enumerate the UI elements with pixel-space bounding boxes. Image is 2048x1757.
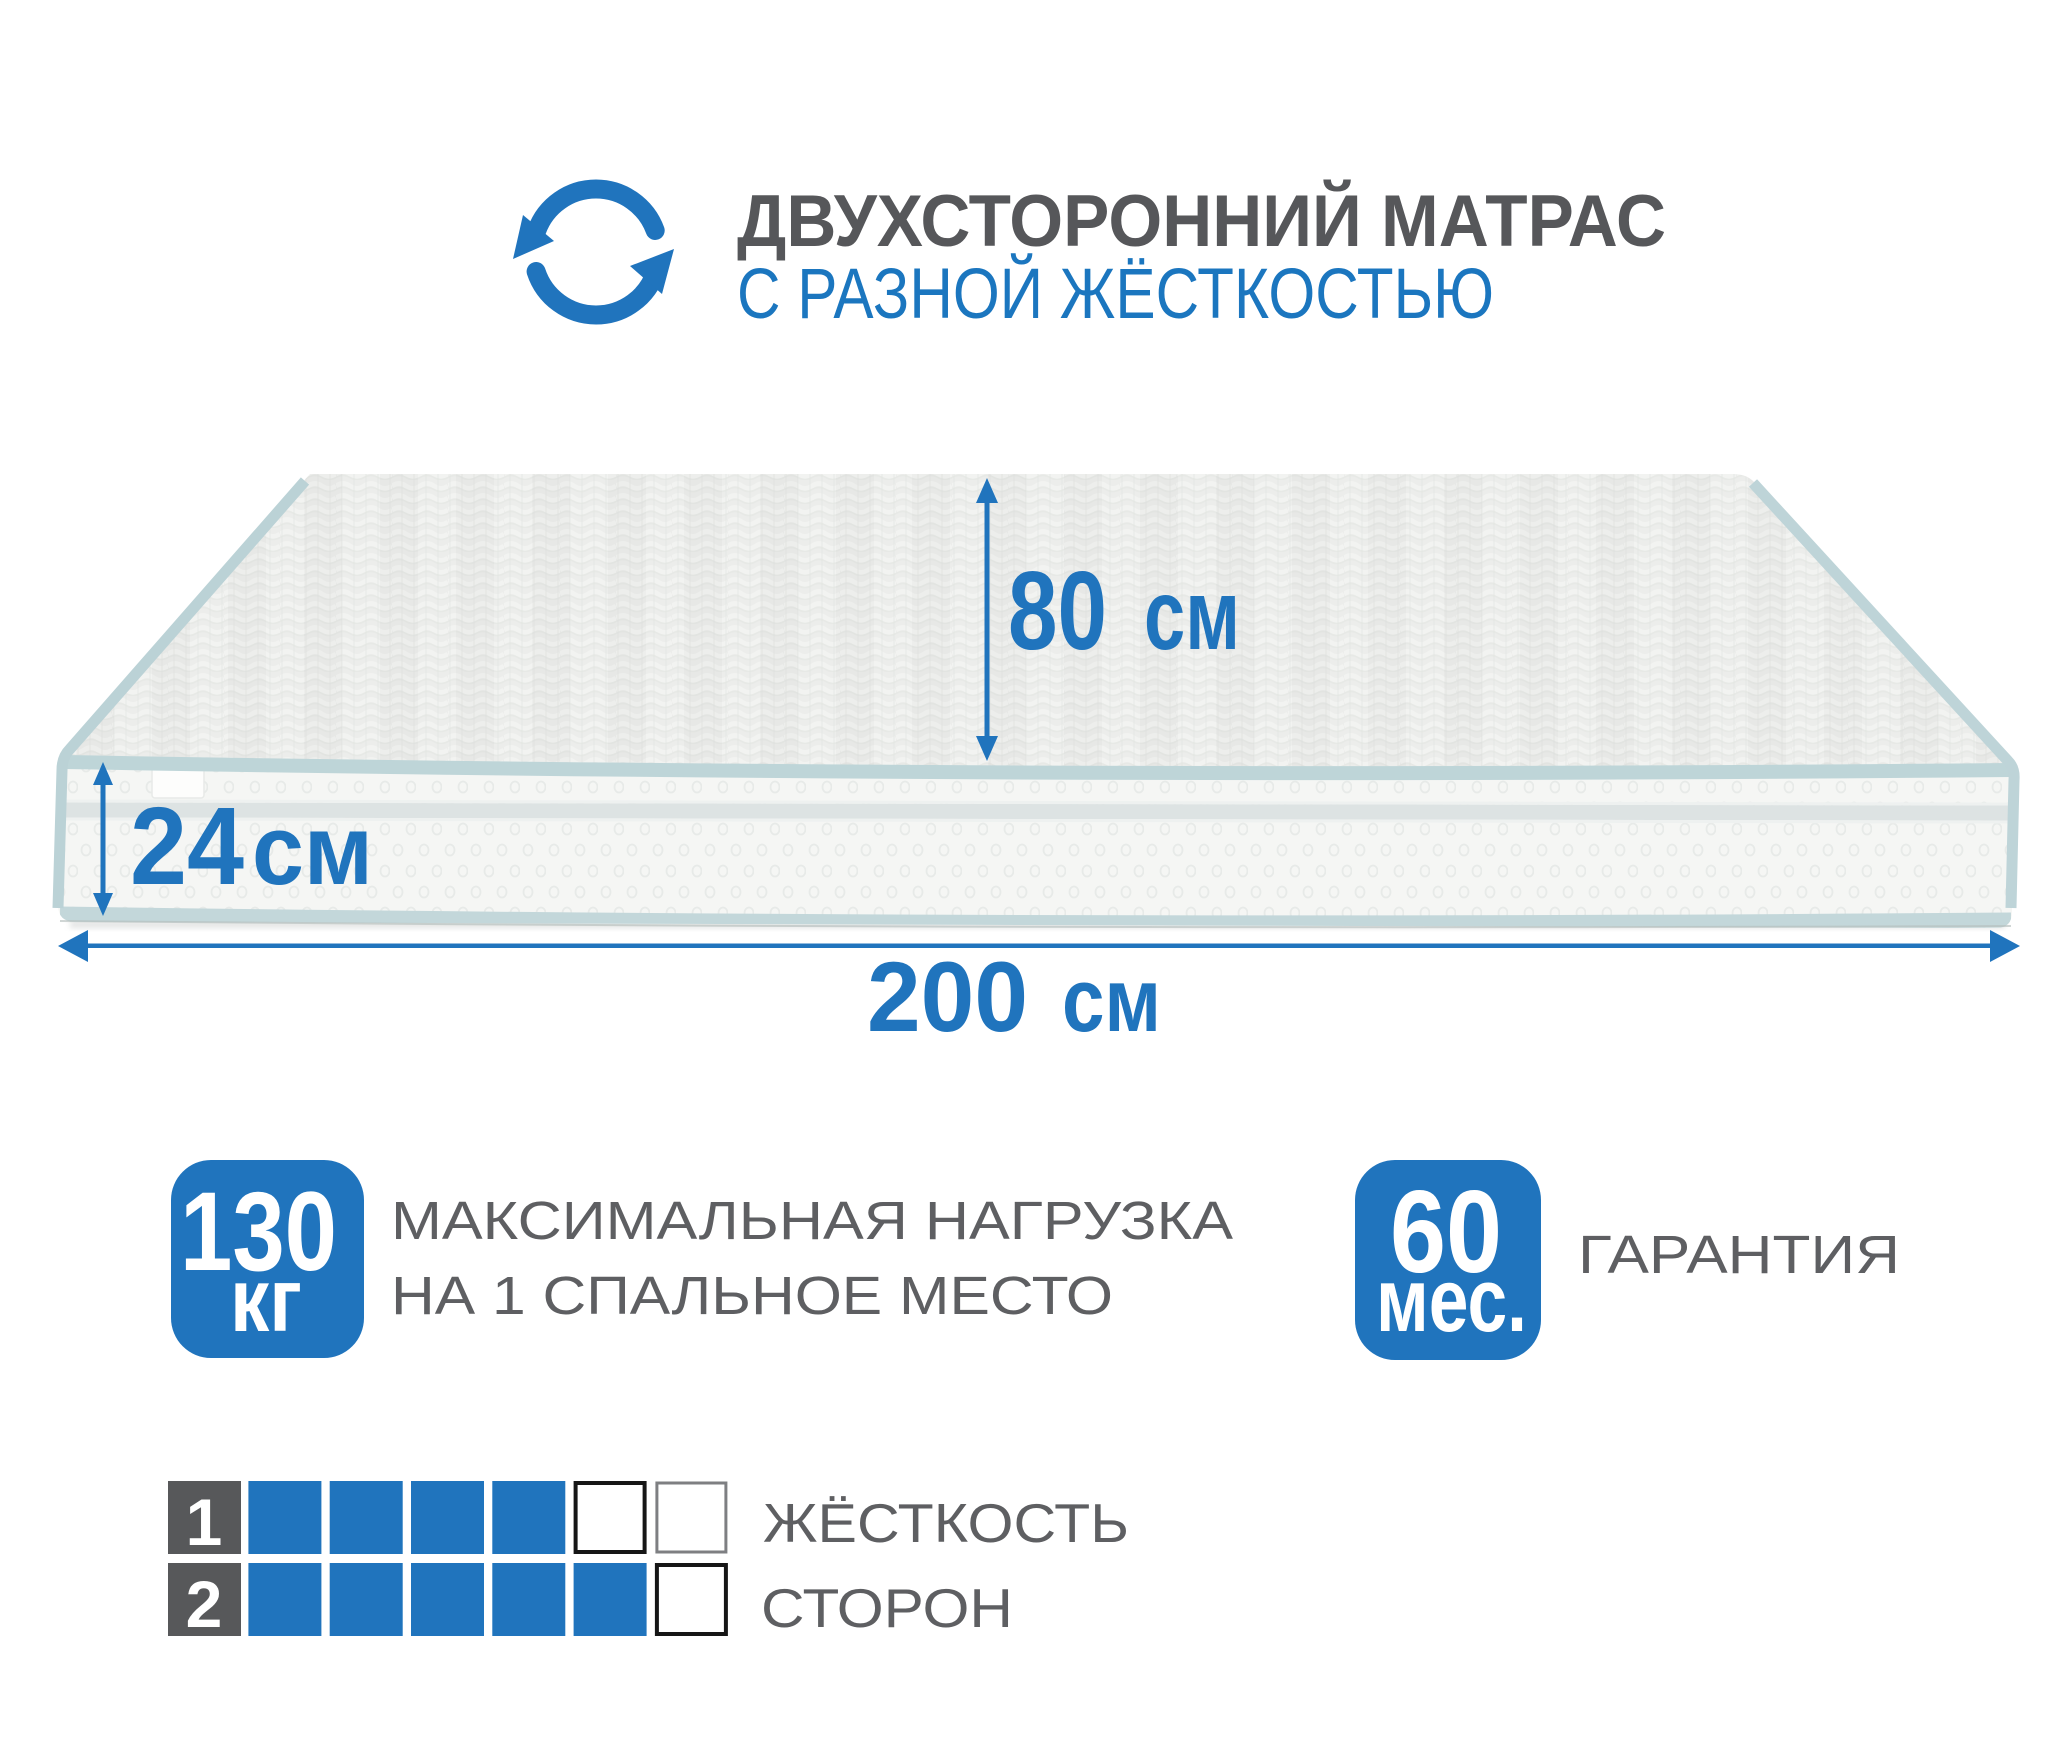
svg-text:1: 1 bbox=[186, 1485, 223, 1559]
svg-text:С РАЗНОЙ ЖЁСТКОСТЬЮ: С РАЗНОЙ ЖЁСТКОСТЬЮ bbox=[737, 254, 1494, 334]
svg-text:ЖЁСТКОСТЬ: ЖЁСТКОСТЬ bbox=[763, 1492, 1129, 1554]
svg-text:2: 2 bbox=[186, 1567, 223, 1641]
svg-text:СТОРОН: СТОРОН bbox=[761, 1577, 1013, 1639]
svg-text:200: 200 bbox=[867, 941, 1028, 1052]
svg-text:см: см bbox=[1144, 559, 1240, 671]
svg-text:см: см bbox=[1062, 951, 1161, 1051]
svg-text:см: см bbox=[252, 794, 373, 905]
svg-text:80: 80 bbox=[1008, 549, 1107, 673]
svg-text:мес.: мес. bbox=[1376, 1251, 1527, 1351]
svg-text:24: 24 bbox=[130, 785, 244, 908]
svg-text:ГАРАНТИЯ: ГАРАНТИЯ bbox=[1578, 1225, 1900, 1285]
svg-text:МАКСИМАЛЬНАЯ НАГРУЗКА: МАКСИМАЛЬНАЯ НАГРУЗКА bbox=[391, 1191, 1233, 1251]
svg-text:кг: кг bbox=[230, 1251, 302, 1351]
svg-text:ДВУХСТОРОННИЙ МАТРАС: ДВУХСТОРОННИЙ МАТРАС bbox=[737, 180, 1666, 262]
svg-text:НА 1 СПАЛЬНОЕ МЕСТО: НА 1 СПАЛЬНОЕ МЕСТО bbox=[391, 1266, 1113, 1326]
